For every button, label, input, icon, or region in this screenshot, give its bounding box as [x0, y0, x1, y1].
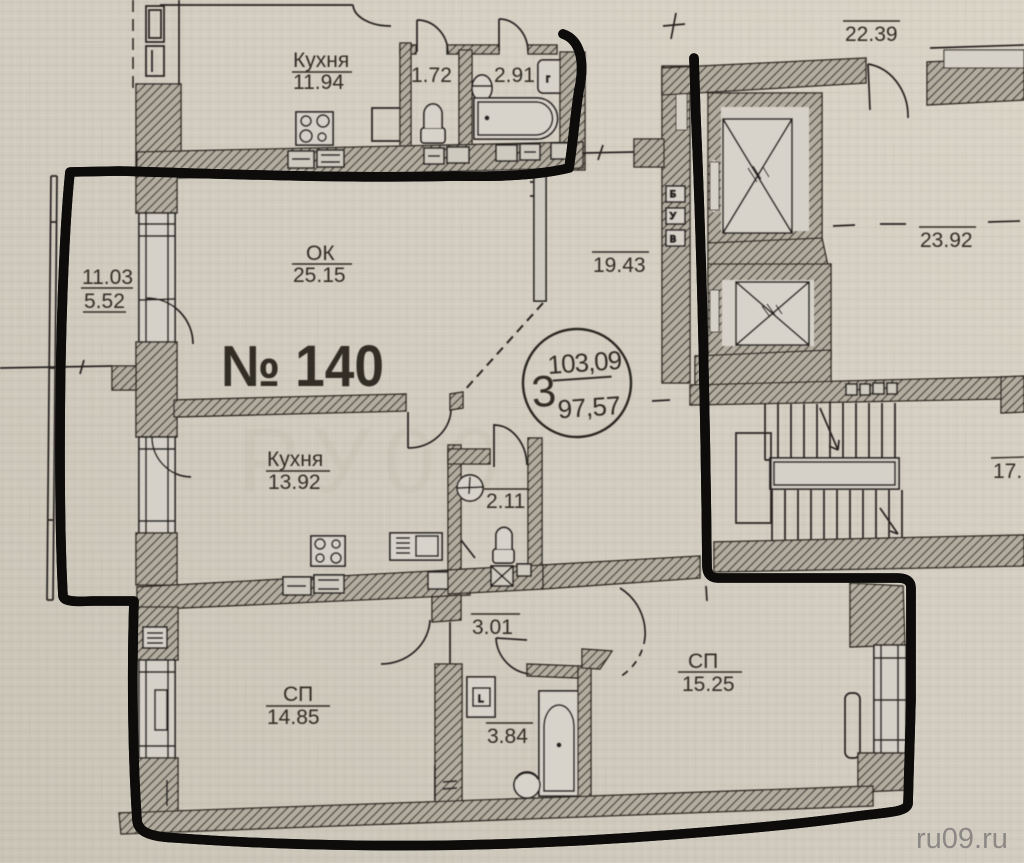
svg-text:ru09.ru: ru09.ru: [916, 823, 1008, 855]
svg-text:11.03: 11.03: [82, 266, 133, 289]
svg-text:97,57: 97,57: [557, 390, 622, 424]
svg-text:15.25: 15.25: [682, 673, 735, 696]
svg-text:СП: СП: [688, 650, 718, 673]
svg-text:У: У: [670, 211, 676, 221]
svg-text:14.85: 14.85: [267, 706, 320, 729]
svg-text:В: В: [670, 234, 676, 244]
svg-text:3.84: 3.84: [487, 725, 528, 748]
svg-text:Б: Б: [670, 189, 676, 199]
svg-text:Кухня: Кухня: [293, 49, 349, 72]
svg-text:19.43: 19.43: [593, 254, 646, 277]
svg-text:17.: 17.: [993, 460, 1022, 483]
svg-text:СП: СП: [283, 683, 313, 706]
svg-text:г: г: [546, 73, 550, 85]
svg-text:2.11: 2.11: [486, 490, 525, 513]
svg-text:22.39: 22.39: [845, 23, 898, 46]
svg-text:2.91: 2.91: [494, 64, 535, 87]
svg-text:1.72: 1.72: [411, 64, 452, 87]
svg-text:11.94: 11.94: [293, 71, 344, 94]
svg-text:Кухня: Кухня: [267, 448, 323, 471]
svg-text:13.92: 13.92: [268, 471, 321, 494]
svg-text:ОК: ОК: [306, 242, 335, 265]
svg-text:25.15: 25.15: [293, 264, 346, 287]
svg-text:103,09: 103,09: [547, 345, 623, 380]
svg-text:L: L: [478, 694, 484, 705]
svg-text:23.92: 23.92: [920, 229, 973, 252]
svg-text:№ 140: № 140: [221, 334, 384, 399]
svg-text:5.52: 5.52: [84, 290, 125, 313]
svg-text:3.01: 3.01: [472, 616, 513, 639]
